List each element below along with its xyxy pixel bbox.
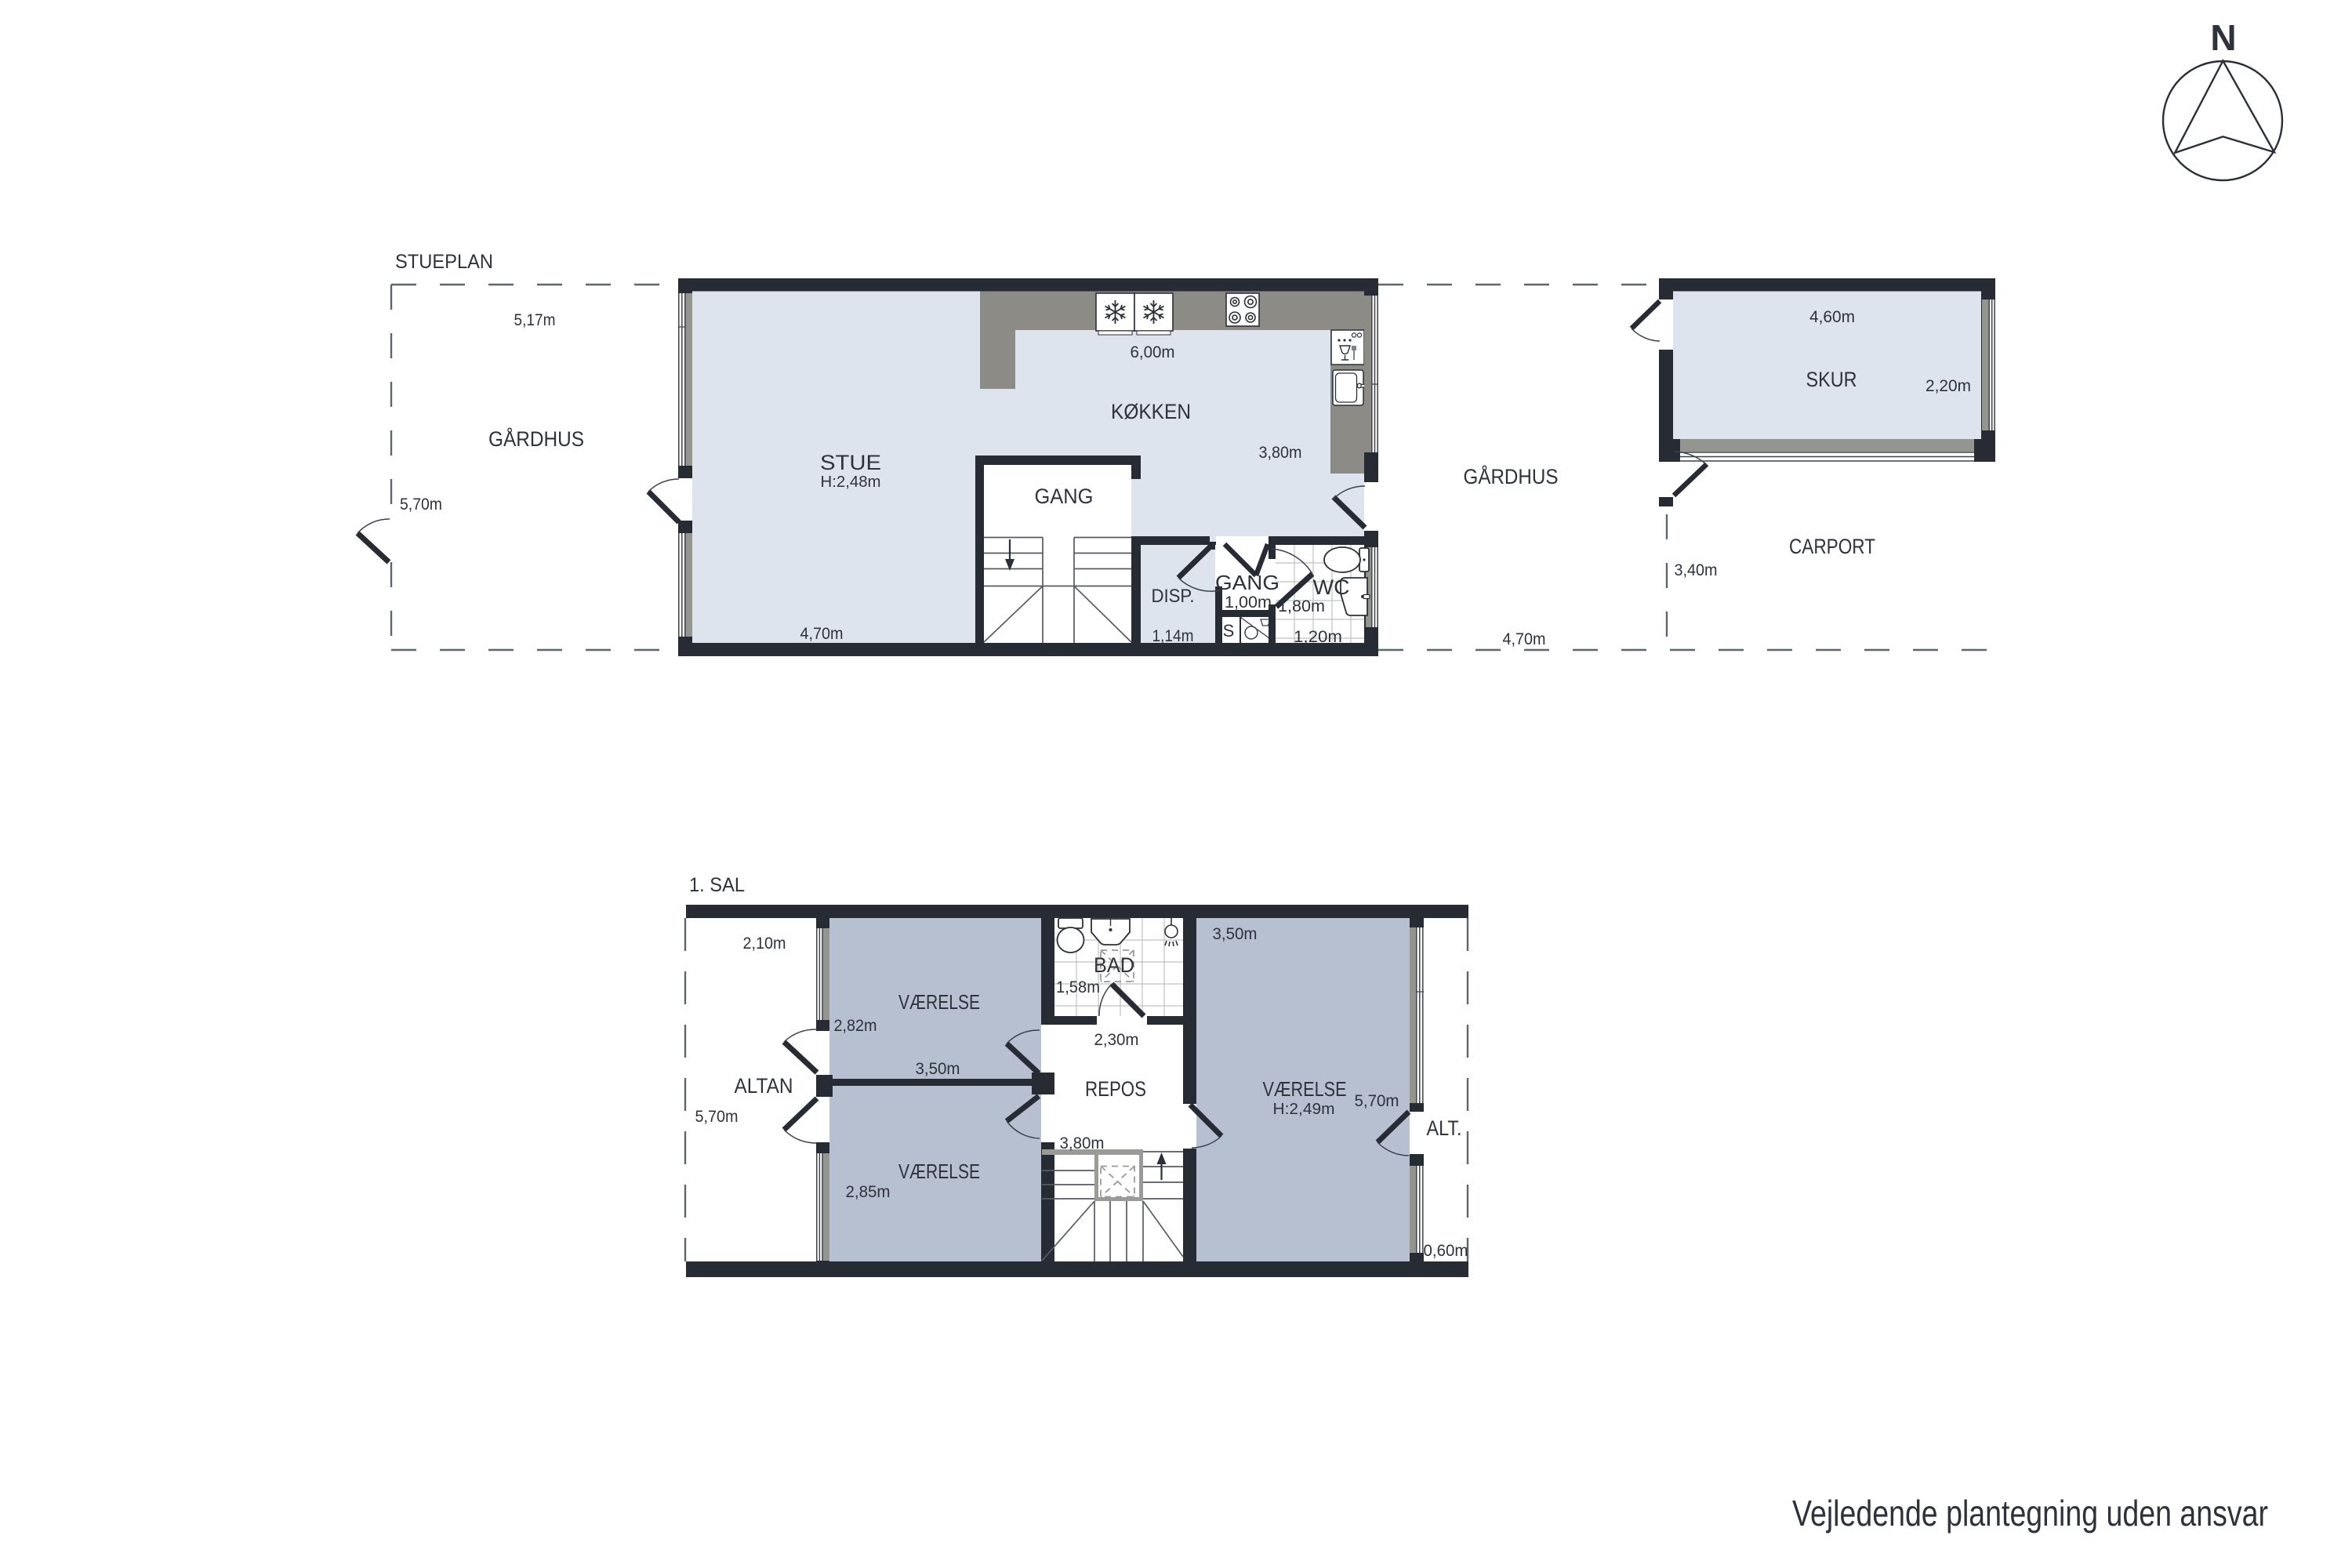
svg-text:0,60m: 0,60m	[1424, 1242, 1468, 1260]
svg-text:2,30m: 2,30m	[1094, 1031, 1139, 1049]
svg-text:N: N	[2210, 17, 2236, 58]
svg-text:CARPORT: CARPORT	[1789, 535, 1875, 558]
svg-text:GANG: GANG	[1035, 485, 1094, 508]
svg-text:KØKKEN: KØKKEN	[1111, 400, 1191, 423]
svg-text:3,50m: 3,50m	[1213, 925, 1258, 943]
svg-text:STUE: STUE	[820, 451, 881, 474]
svg-text:GÅRDHUS: GÅRDHUS	[1464, 464, 1559, 488]
svg-text:VÆRELSE: VÆRELSE	[1263, 1077, 1347, 1101]
svg-text:H:2,49m: H:2,49m	[1273, 1101, 1335, 1118]
svg-text:3,40m: 3,40m	[1675, 561, 1718, 579]
svg-text:3,80m: 3,80m	[1259, 444, 1302, 462]
svg-text:3,80m: 3,80m	[1060, 1134, 1105, 1152]
svg-text:3,50m: 3,50m	[916, 1060, 960, 1078]
svg-text:SKUR: SKUR	[1806, 368, 1857, 391]
svg-text:2,85m: 2,85m	[846, 1183, 891, 1201]
svg-text:4,70m: 4,70m	[1503, 630, 1546, 648]
svg-text:2,82m: 2,82m	[834, 1017, 877, 1035]
svg-text:6,00m: 6,00m	[1131, 343, 1175, 361]
svg-text:S: S	[1223, 621, 1235, 641]
svg-text:1,00m: 1,00m	[1225, 593, 1272, 612]
svg-text:VÆRELSE: VÆRELSE	[898, 1160, 980, 1183]
svg-text:ALTAN: ALTAN	[735, 1074, 793, 1098]
svg-text:1,80m: 1,80m	[1278, 597, 1325, 615]
svg-text:STUEPLAN: STUEPLAN	[395, 251, 493, 273]
svg-text:BAD: BAD	[1094, 953, 1134, 977]
svg-text:WC: WC	[1313, 575, 1350, 599]
svg-text:4,60m: 4,60m	[1809, 308, 1855, 326]
svg-text:ALT.: ALT.	[1427, 1116, 1462, 1140]
svg-text:1,14m: 1,14m	[1152, 627, 1194, 645]
svg-text:DISP.: DISP.	[1152, 586, 1195, 607]
svg-text:2,10m: 2,10m	[743, 935, 786, 953]
svg-text:1. SAL: 1. SAL	[689, 874, 745, 896]
svg-text:1,58m: 1,58m	[1056, 978, 1100, 996]
svg-text:1,20m: 1,20m	[1294, 628, 1342, 646]
svg-text:2,20m: 2,20m	[1926, 377, 1971, 395]
svg-text:Vejledende plantegning uden an: Vejledende plantegning uden ansvar	[1792, 1493, 2268, 1534]
svg-text:GÅRDHUS: GÅRDHUS	[488, 426, 584, 451]
svg-text:5,70m: 5,70m	[695, 1108, 739, 1126]
svg-text:5,17m: 5,17m	[514, 311, 556, 329]
svg-text:H:2,48m: H:2,48m	[821, 474, 881, 491]
svg-text:REPOS: REPOS	[1085, 1077, 1146, 1101]
svg-text:4,70m: 4,70m	[800, 625, 844, 643]
svg-text:5,70m: 5,70m	[1355, 1092, 1399, 1110]
svg-text:5,70m: 5,70m	[400, 495, 442, 514]
svg-text:VÆRELSE: VÆRELSE	[898, 990, 980, 1014]
svg-text:GANG: GANG	[1215, 571, 1279, 594]
